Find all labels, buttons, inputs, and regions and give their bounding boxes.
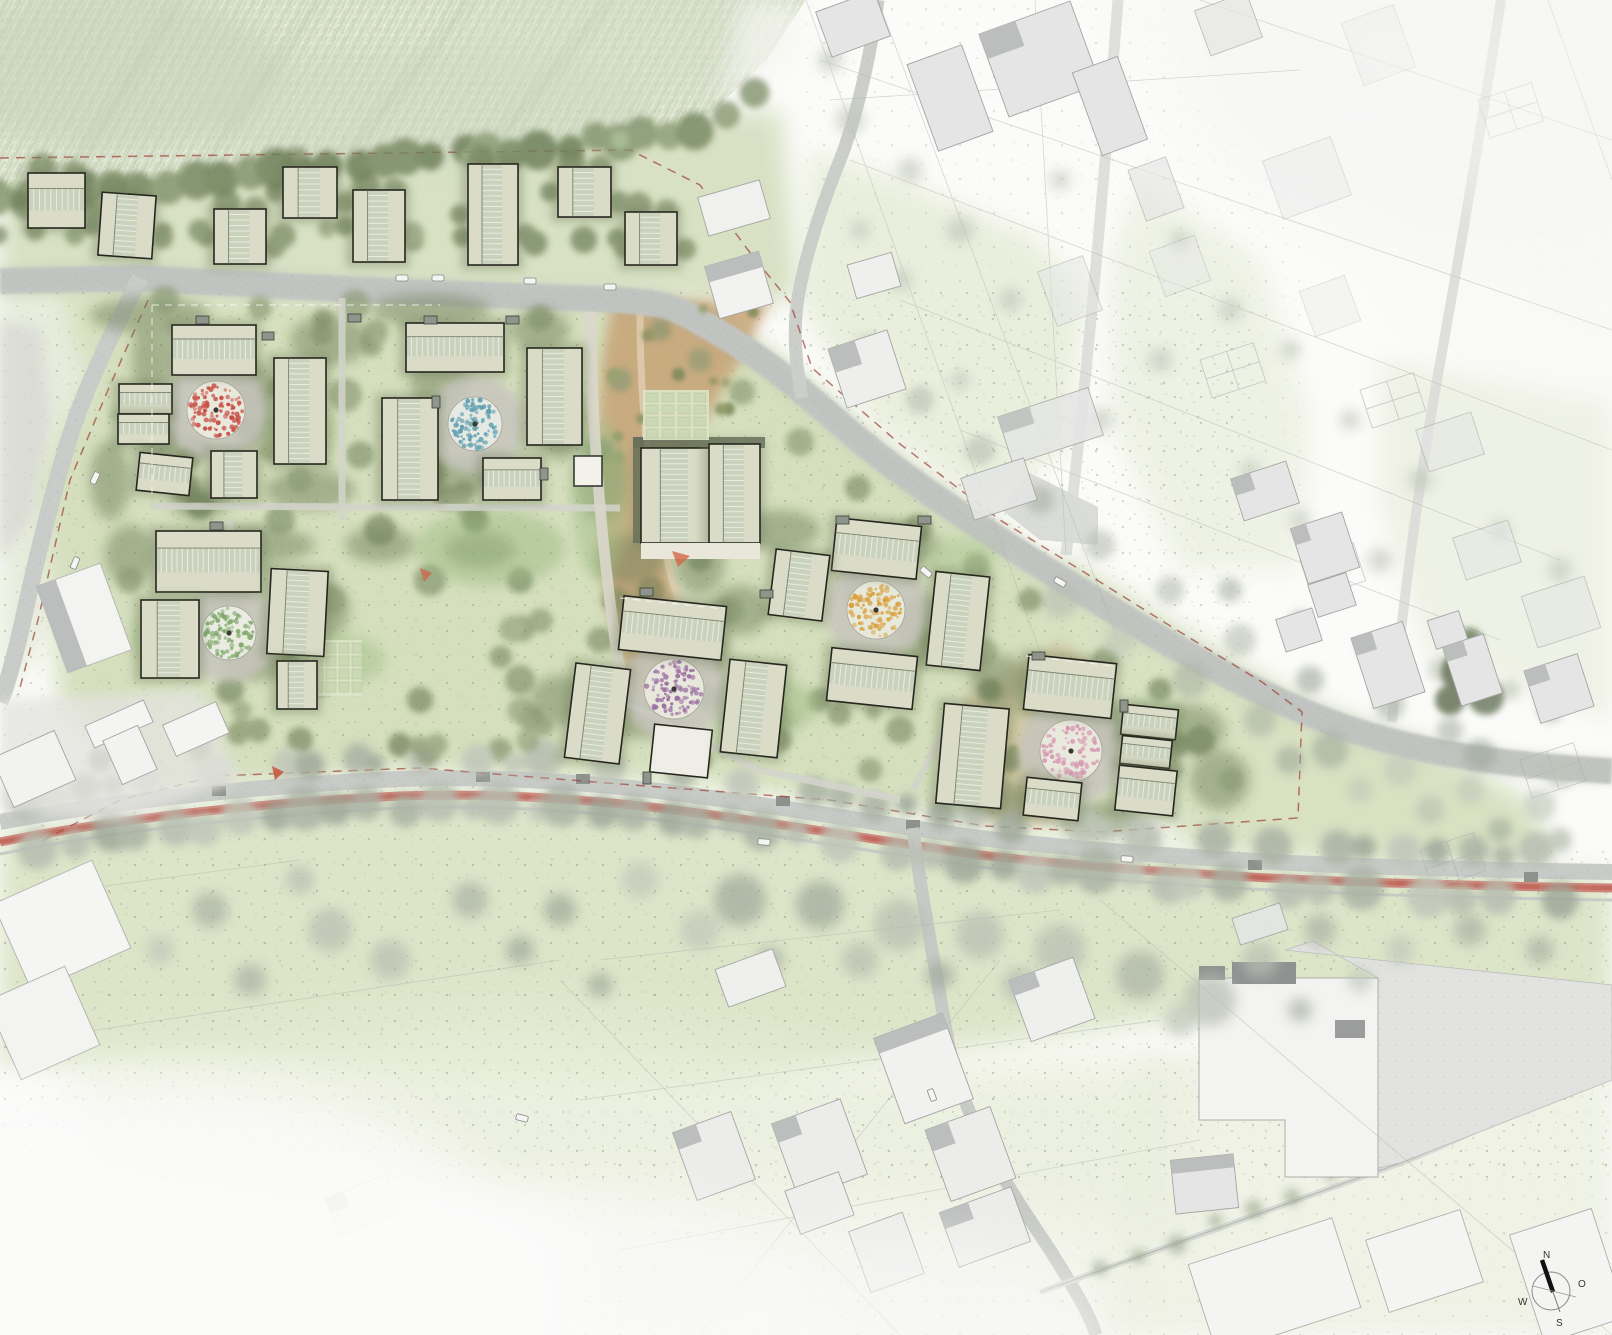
- svg-text:N: N: [1543, 1250, 1550, 1261]
- svg-text:S: S: [1556, 1318, 1563, 1329]
- svg-text:W: W: [1518, 1297, 1528, 1308]
- svg-text:O: O: [1578, 1279, 1586, 1290]
